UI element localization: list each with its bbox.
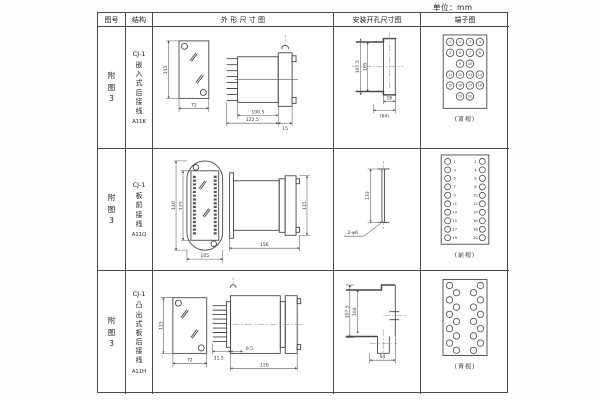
terminal-circle (445, 226, 451, 232)
terminal-circle (479, 218, 485, 224)
code-r2: A11Q (132, 232, 147, 238)
terminal-circle (479, 226, 485, 232)
terminal-number: 1 (453, 160, 456, 164)
terminal-circle (445, 192, 451, 198)
terminal-diagram-r2: 1234567891011121314151617181920 (前视) (421, 149, 509, 270)
type-r2: 板前接线 (135, 192, 144, 229)
terminal-circle (479, 167, 485, 173)
terminal-number: 4 (474, 168, 477, 172)
terminal-number: 17 (468, 84, 472, 88)
hook-icon (282, 45, 289, 48)
break-mark-icon (196, 75, 203, 84)
header-structure: 结构 (126, 13, 153, 27)
terminal-number: 19 (452, 236, 457, 240)
screw-hole-icon (182, 43, 188, 49)
terminal-number: 18 (473, 228, 478, 232)
outline-cell-r2: 140 125 105 156 115 (153, 149, 334, 271)
terminal-circle (479, 192, 485, 198)
dim-front-height-r3: 115 (158, 321, 164, 330)
break-mark-icon (203, 209, 210, 218)
terminal-number: 13 (468, 73, 472, 77)
header-terminal-label: 端子图 (455, 15, 476, 25)
mounting-cell-r2: 133 2-φ6 (334, 149, 421, 271)
terminal-circle (445, 209, 451, 215)
terminal-number: 15 (448, 84, 452, 88)
terminal-circle (453, 318, 459, 324)
model-r2: CJ-1 (133, 181, 146, 189)
terminal-circle (446, 326, 452, 332)
terminal-circle (453, 333, 459, 339)
terminal-circle (445, 175, 451, 181)
terminal-number: 14 (478, 73, 482, 77)
view-label-r1: (背视) (455, 115, 475, 123)
terminal-number: 6 (459, 51, 461, 55)
terminal-number: 12 (458, 73, 462, 77)
terminal-number: 13 (452, 211, 457, 215)
break-mark-icon (191, 330, 198, 339)
terminal-circle (445, 184, 451, 190)
terminal-grid: 1234567891011121314151617181920 (446, 38, 483, 100)
type-r1: 嵌入式后接线 (135, 61, 144, 116)
terminal-cell-r3: (背视) (421, 271, 509, 394)
dimension-table: 图号 结构 外 形 尺 寸 图 安装开孔尺寸图 端子图 附图3 CJ-1 嵌入式… (97, 12, 508, 393)
terminal-circle (477, 326, 483, 332)
terminal-number: 20 (468, 95, 472, 99)
figure-no-r1-label: 附图3 (107, 70, 116, 105)
model-r1: CJ-1 (133, 50, 146, 58)
terminal-circle (479, 175, 485, 181)
view-label-r3: (背视) (455, 363, 476, 371)
terminal-number: 3 (453, 168, 456, 172)
terminal-circle (470, 333, 476, 339)
header-terminal: 端子图 (421, 13, 509, 27)
terminal-number: 14 (473, 211, 478, 215)
dim-side-h-r2: 115 (302, 201, 308, 210)
terminal-circle (453, 347, 459, 353)
terminal-cell-r1: 1234567891011121314151617181920 (背视) (421, 27, 509, 149)
dim-front-width-r1: 72 (191, 102, 197, 108)
dim-side-d2-r3: 9.5 (246, 346, 253, 352)
header-figure-label: 图号 (105, 15, 119, 25)
dim-front-w-r2: 105 (200, 253, 209, 259)
dim-side-d2-r1: 122.5 (246, 117, 259, 123)
terminal-pins-icon (213, 306, 227, 342)
dim-side-w-r2: 156 (260, 242, 269, 248)
terminal-number: 11 (452, 202, 457, 206)
dim-side-d3-r3: 126 (260, 362, 269, 368)
terminal-number: 10 (473, 194, 478, 198)
outline-cell-r1: 115 72 100.5 122.5 15 (153, 27, 334, 149)
header-figure: 图号 (98, 13, 126, 27)
mounting-cell-r1: 107.5 105 16 (64) (334, 27, 421, 149)
terminal-circle (477, 282, 483, 288)
code-r3: A11H (132, 369, 146, 375)
terminal-circle (445, 201, 451, 207)
terminal-circle (453, 304, 459, 310)
screw-hole-icon (175, 300, 181, 306)
terminal-circle (445, 158, 451, 164)
dim-mount-v-r2: 133 (365, 191, 371, 200)
terminal-circle (446, 311, 452, 317)
screw-hole-icon (200, 89, 206, 95)
terminal-circle (470, 318, 476, 324)
terminal-circle (479, 201, 485, 207)
terminal-diagram-r1: 1234567891011121314151617181920 (背视) (421, 27, 509, 148)
outline-cell-r3: 115 72 31.5 9.5 (153, 271, 334, 394)
terminal-grid: 1234567891011121314151617181920 (445, 158, 486, 240)
terminal-number: 8 (474, 185, 477, 189)
terminal-circle (470, 304, 476, 310)
mounting-diagram-r2: 133 2-φ6 (334, 149, 420, 270)
terminal-number: 15 (452, 219, 457, 223)
structure-r2: CJ-1 板前接线 A11Q (126, 149, 153, 271)
terminal-number: 16 (458, 84, 462, 88)
screw-hole-icon (193, 165, 199, 171)
terminal-number: 7 (469, 51, 471, 55)
terminal-circle (479, 235, 485, 241)
figure-no-r2-label: 附图3 (107, 192, 116, 227)
terminal-circle (479, 158, 485, 164)
dim-front-h2-r2: 125 (179, 201, 185, 210)
terminal-circle (479, 209, 485, 215)
terminal-circle (445, 218, 451, 224)
terminal-circle (445, 167, 451, 173)
dim-front-height-r1: 115 (163, 65, 169, 74)
hole-spec-r2: 2-φ6 (348, 230, 359, 236)
dim-mount-h2-r1: (64) (380, 114, 390, 120)
mounting-diagram-r1: 107.5 105 16 (64) (334, 27, 420, 148)
dim-front-width-r3: 72 (187, 357, 193, 363)
mounting-diagram-r3: 107.5 104 64 (334, 271, 420, 394)
terminal-number: 1 (449, 40, 451, 44)
terminal-number: 7 (453, 185, 456, 189)
terminal-circle (477, 311, 483, 317)
terminal-circle (453, 290, 459, 296)
header-structure-label: 结构 (132, 15, 146, 25)
dim-mount-v1-r3: 107.5 (344, 305, 350, 318)
terminal-number: 9 (459, 62, 461, 66)
dim-mount-v2-r3: 104 (352, 307, 358, 316)
structure-r1: CJ-1 嵌入式后接线 A11K (126, 27, 153, 149)
figure-no-r2: 附图3 (98, 149, 126, 271)
figure-no-r1: 附图3 (98, 27, 126, 149)
structure-r3: CJ-1 凸出式板后接线 A11H (126, 271, 153, 394)
terminal-number: 20 (473, 236, 478, 240)
outline-diagram-r3: 115 72 31.5 9.5 (153, 271, 333, 394)
terminal-circle (479, 184, 485, 190)
break-mark-icon (181, 310, 188, 319)
terminal-circle (470, 347, 476, 353)
terminal-circle (477, 340, 483, 346)
model-r3: CJ-1 (133, 290, 146, 298)
break-mark-icon (190, 53, 197, 62)
terminal-circle (470, 290, 476, 296)
terminal-number: 8 (479, 51, 481, 55)
terminal-circle (446, 340, 452, 346)
manual-page: 单位：mm 图号 结构 外 形 尺 寸 图 安装开孔尺寸图 端子图 附图3 CJ… (0, 0, 600, 400)
dim-side-d3-r1: 15 (282, 126, 288, 132)
terminal-circle (477, 297, 483, 303)
screw-hole-icon (198, 345, 204, 351)
hook-icon (230, 285, 236, 288)
terminal-number: 18 (478, 84, 482, 88)
terminal-number: 10 (468, 62, 472, 66)
terminal-number: 4 (479, 40, 481, 44)
terminal-number: 3 (469, 40, 471, 44)
terminal-grid (446, 282, 483, 353)
mounting-cell-r3: 107.5 104 64 (334, 271, 421, 394)
outline-diagram-r2: 140 125 105 156 115 (153, 149, 333, 270)
terminal-number: 6 (474, 177, 477, 181)
terminal-number: 12 (473, 202, 478, 206)
terminal-number: 2 (459, 40, 461, 44)
dim-mount-h1-r3: 64 (380, 354, 386, 360)
header-mounting: 安装开孔尺寸图 (334, 13, 421, 27)
figure-no-r3-label: 附图3 (107, 315, 116, 350)
dim-side-d1-r1: 100.5 (251, 109, 264, 115)
screw-hole-icon (211, 241, 217, 247)
terminal-cell-r2: 1234567891011121314151617181920 (前视) (421, 149, 509, 271)
dim-mount-h1-r1: 16 (386, 95, 392, 101)
header-outline: 外 形 尺 寸 图 (153, 13, 334, 27)
terminal-circle (446, 282, 452, 288)
dim-side-d1-r3: 31.5 (214, 355, 224, 361)
terminal-circle (446, 297, 452, 303)
terminal-number: 19 (458, 95, 462, 99)
terminal-number: 2 (474, 160, 477, 164)
terminal-number: 17 (452, 228, 457, 232)
terminal-number: 5 (453, 177, 456, 181)
view-label-r2: (前视) (455, 251, 475, 259)
terminal-number: 11 (448, 73, 452, 77)
outline-diagram-r1: 115 72 100.5 122.5 15 (153, 27, 333, 148)
header-outline-label: 外 形 尺 寸 图 (221, 15, 265, 25)
type-r3: 凸出式板后接线 (135, 301, 144, 365)
dim-front-h1-r2: 140 (171, 201, 177, 210)
header-mounting-label: 安装开孔尺寸图 (353, 15, 402, 25)
terminal-diagram-r3: (背视) (421, 271, 509, 394)
terminal-number: 16 (473, 219, 478, 223)
terminal-circle (445, 235, 451, 241)
terminal-number: 5 (449, 51, 451, 55)
terminal-number: 9 (453, 194, 456, 198)
break-mark-icon (199, 181, 206, 190)
dim-mount-v1-r1: 107.5 (355, 60, 361, 73)
figure-no-r3: 附图3 (98, 271, 126, 394)
dim-mount-v2-r1: 105 (363, 62, 369, 71)
code-r1: A11K (132, 119, 146, 125)
